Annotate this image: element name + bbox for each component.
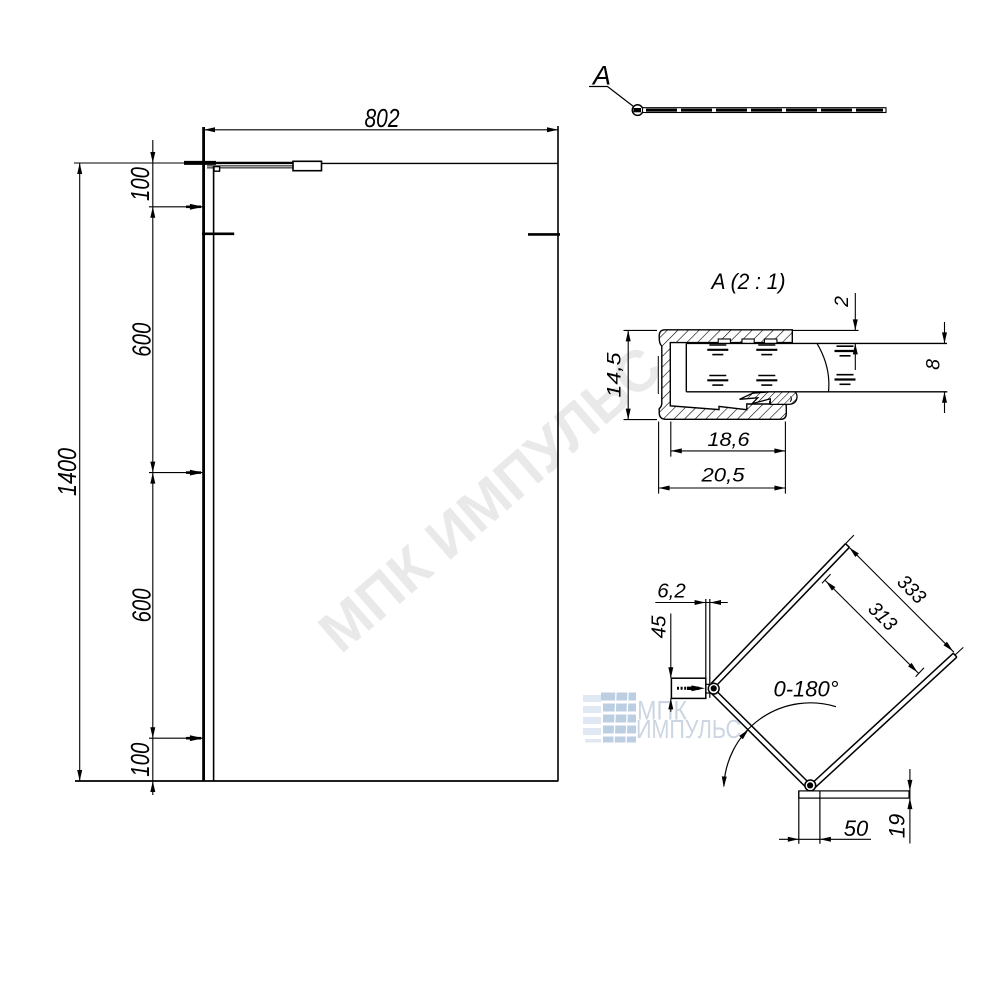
svg-text:600: 600 <box>127 588 157 622</box>
svg-text:ИМПУЛЬС: ИМПУЛЬС <box>636 714 741 744</box>
svg-text:6,2: 6,2 <box>657 580 686 603</box>
svg-text:2: 2 <box>831 296 853 308</box>
svg-text:19: 19 <box>885 814 910 838</box>
svg-text:18,6: 18,6 <box>708 429 750 451</box>
svg-text:45: 45 <box>648 615 671 638</box>
svg-text:14,5: 14,5 <box>604 352 626 397</box>
svg-text:8: 8 <box>923 359 945 370</box>
svg-text:0-180°: 0-180° <box>773 677 838 702</box>
svg-text:A (2 : 1): A (2 : 1) <box>710 269 786 294</box>
svg-text:100: 100 <box>125 742 155 776</box>
svg-text:1400: 1400 <box>52 448 82 496</box>
svg-text:802: 802 <box>365 103 400 133</box>
svg-text:100: 100 <box>125 167 155 201</box>
svg-text:20,5: 20,5 <box>700 465 744 487</box>
svg-text:50: 50 <box>844 816 869 841</box>
svg-text:600: 600 <box>127 322 157 356</box>
